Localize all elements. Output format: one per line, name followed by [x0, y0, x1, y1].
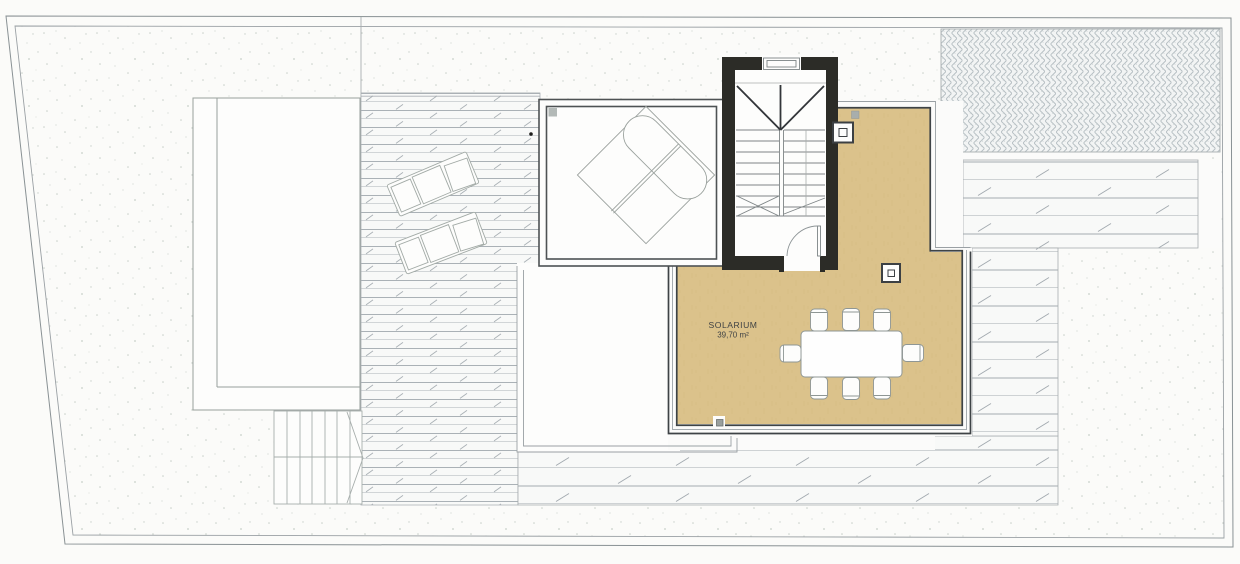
svg-text:39,70 m²: 39,70 m²	[717, 331, 749, 340]
svg-text:SOLARIUM: SOLARIUM	[709, 320, 758, 330]
